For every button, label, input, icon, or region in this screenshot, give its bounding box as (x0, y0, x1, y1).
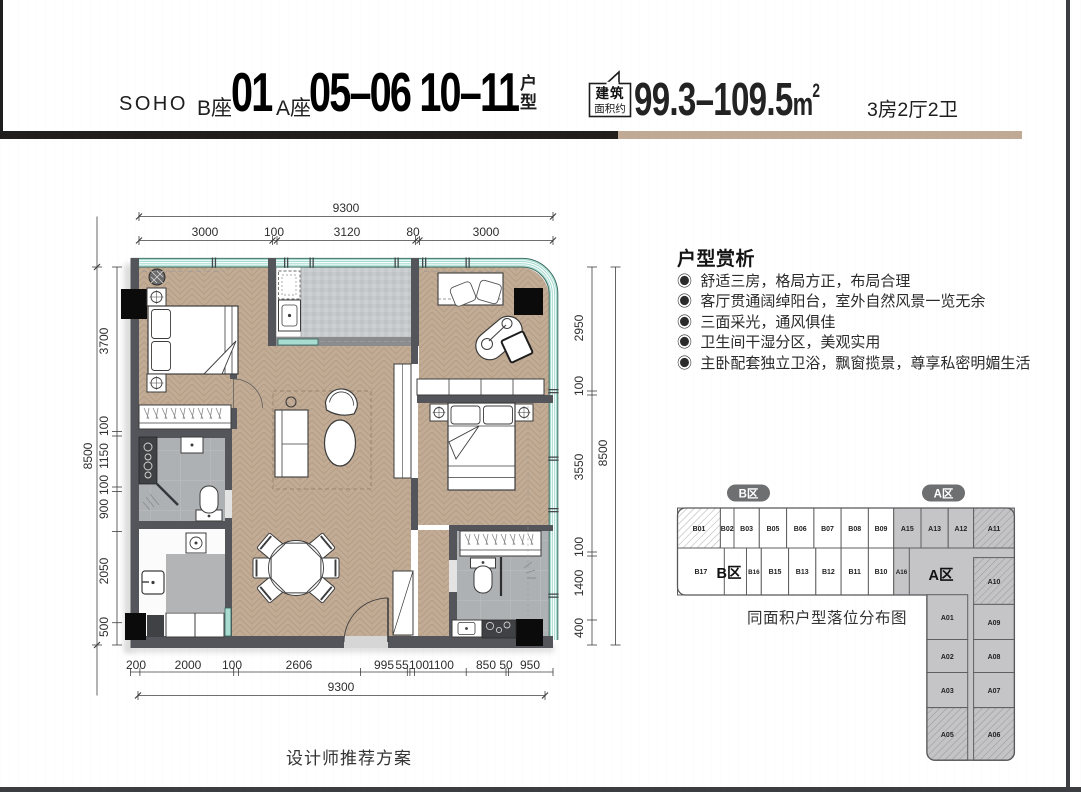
svg-text:B区: B区 (717, 565, 742, 582)
svg-text:B12: B12 (822, 569, 835, 576)
svg-text:B01: B01 (693, 526, 706, 533)
svg-text:B10: B10 (875, 569, 888, 576)
svg-text:B16: B16 (748, 569, 760, 576)
svg-text:B08: B08 (848, 526, 861, 533)
svg-text:A03: A03 (941, 688, 954, 695)
svg-text:A区: A区 (934, 488, 954, 501)
svg-text:A12: A12 (954, 526, 967, 533)
svg-text:A区: A区 (929, 567, 954, 584)
svg-text:A09: A09 (988, 620, 1001, 627)
svg-text:B06: B06 (794, 526, 807, 533)
svg-text:A16: A16 (896, 569, 908, 576)
svg-text:B13: B13 (796, 569, 809, 576)
svg-text:A01: A01 (941, 615, 954, 622)
svg-text:A10: A10 (988, 579, 1001, 586)
svg-text:同面积户型落位分布图: 同面积户型落位分布图 (747, 609, 907, 627)
svg-text:A05: A05 (941, 732, 954, 739)
svg-text:B07: B07 (821, 526, 834, 533)
svg-text:B11: B11 (848, 569, 861, 576)
svg-text:B03: B03 (740, 526, 753, 533)
svg-text:B17: B17 (694, 569, 707, 576)
svg-text:A15: A15 (901, 526, 914, 533)
svg-text:B09: B09 (875, 526, 888, 533)
svg-text:A02: A02 (941, 654, 954, 661)
svg-text:A08: A08 (988, 654, 1001, 661)
svg-text:B15: B15 (769, 569, 782, 576)
svg-text:A13: A13 (928, 526, 941, 533)
svg-text:B02: B02 (721, 526, 734, 533)
svg-text:B区: B区 (739, 488, 759, 501)
svg-text:A11: A11 (988, 526, 1001, 533)
svg-text:A07: A07 (988, 688, 1001, 695)
svg-text:A06: A06 (988, 732, 1001, 739)
svg-text:B05: B05 (767, 526, 780, 533)
